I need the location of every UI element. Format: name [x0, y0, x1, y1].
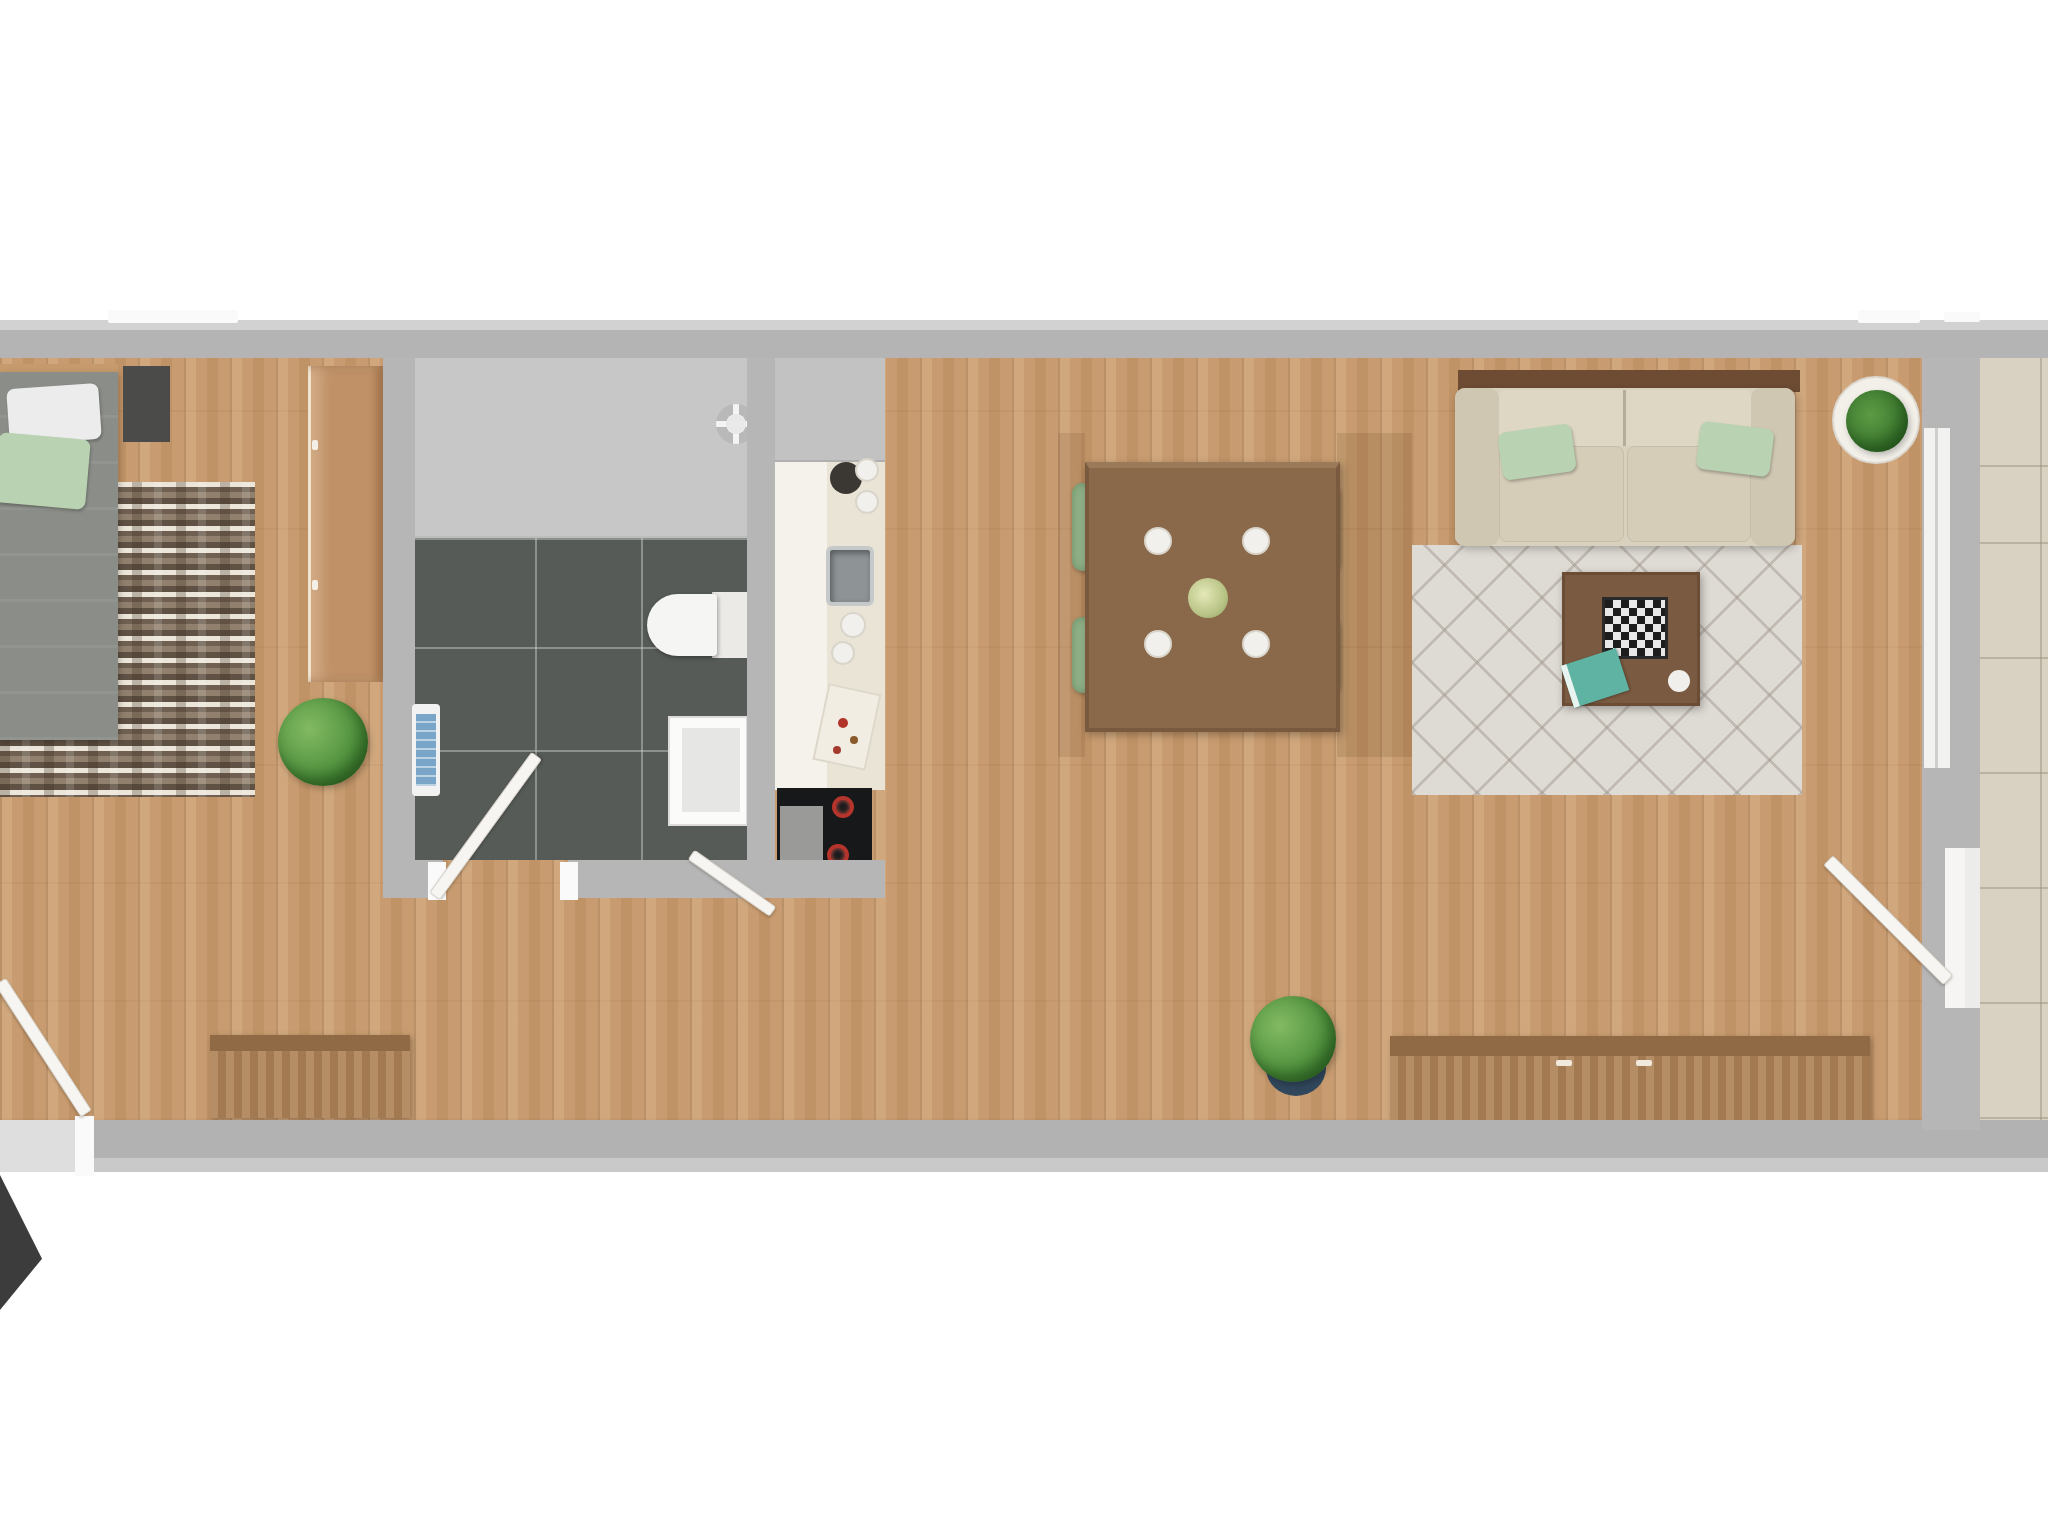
food-item [833, 746, 841, 754]
entrance-arrow-icon [0, 1175, 42, 1310]
kitchen-sink [826, 546, 874, 606]
red-burner [832, 796, 854, 818]
toilet [647, 594, 717, 656]
entry-door-jamb [75, 1116, 94, 1176]
bedroom-dresser [210, 1035, 410, 1118]
outer-wall-top [0, 320, 2048, 358]
food-item [850, 736, 858, 744]
shower-floor [415, 358, 747, 538]
bathroom-wall-left [383, 358, 415, 898]
wardrobe [308, 366, 383, 682]
dinner-plate [1144, 527, 1172, 555]
outer-wall-bottom [0, 1120, 2048, 1172]
window-mark [108, 310, 238, 323]
wardrobe-handle [312, 440, 318, 450]
balcony-door-frame [1945, 848, 1965, 1008]
sideboard-handle [1636, 1060, 1652, 1066]
dinner-plate [1144, 630, 1172, 658]
window-mark [1858, 310, 1920, 323]
sofa-pillow-green [1695, 421, 1774, 478]
toilet-tank [712, 592, 748, 658]
table-centerpiece [1188, 578, 1228, 618]
bathroom-door-jamb [560, 862, 578, 900]
nightstand [123, 366, 170, 442]
cooktop-tray [780, 806, 823, 868]
vanity-basin [682, 728, 740, 812]
coaster [1668, 670, 1690, 692]
living-plant [1846, 390, 1908, 452]
kitchen-plate [840, 612, 866, 638]
entry-door-opening [0, 1120, 75, 1172]
sofa-armrest [1455, 388, 1499, 546]
bedroom-plant [278, 698, 368, 786]
floor-shade-patch [1337, 433, 1412, 757]
radiator-blue [416, 714, 436, 786]
floor-plan-canvas [0, 0, 2048, 1538]
food-item [838, 718, 848, 728]
floor-shade-patch [1058, 433, 1085, 757]
wardrobe-handle [312, 580, 318, 590]
dinner-plate [1242, 527, 1270, 555]
living-sideboard [1390, 1036, 1870, 1120]
kitchen-plate [831, 641, 855, 665]
hall-plant [1250, 996, 1336, 1082]
kitchen-plate [855, 490, 879, 514]
sofa-pillow-green [1497, 423, 1577, 481]
bathroom-wall-right [747, 358, 775, 898]
kitchen-tall-cabinet [775, 358, 885, 462]
bed-pillow-green [0, 432, 91, 510]
sideboard-handle [1556, 1060, 1572, 1066]
kitchen-plate [855, 458, 879, 482]
dinner-plate [1242, 630, 1270, 658]
window-mark [1944, 312, 1980, 322]
balcony-window [1924, 428, 1950, 768]
balcony-floor [1980, 358, 2048, 1125]
